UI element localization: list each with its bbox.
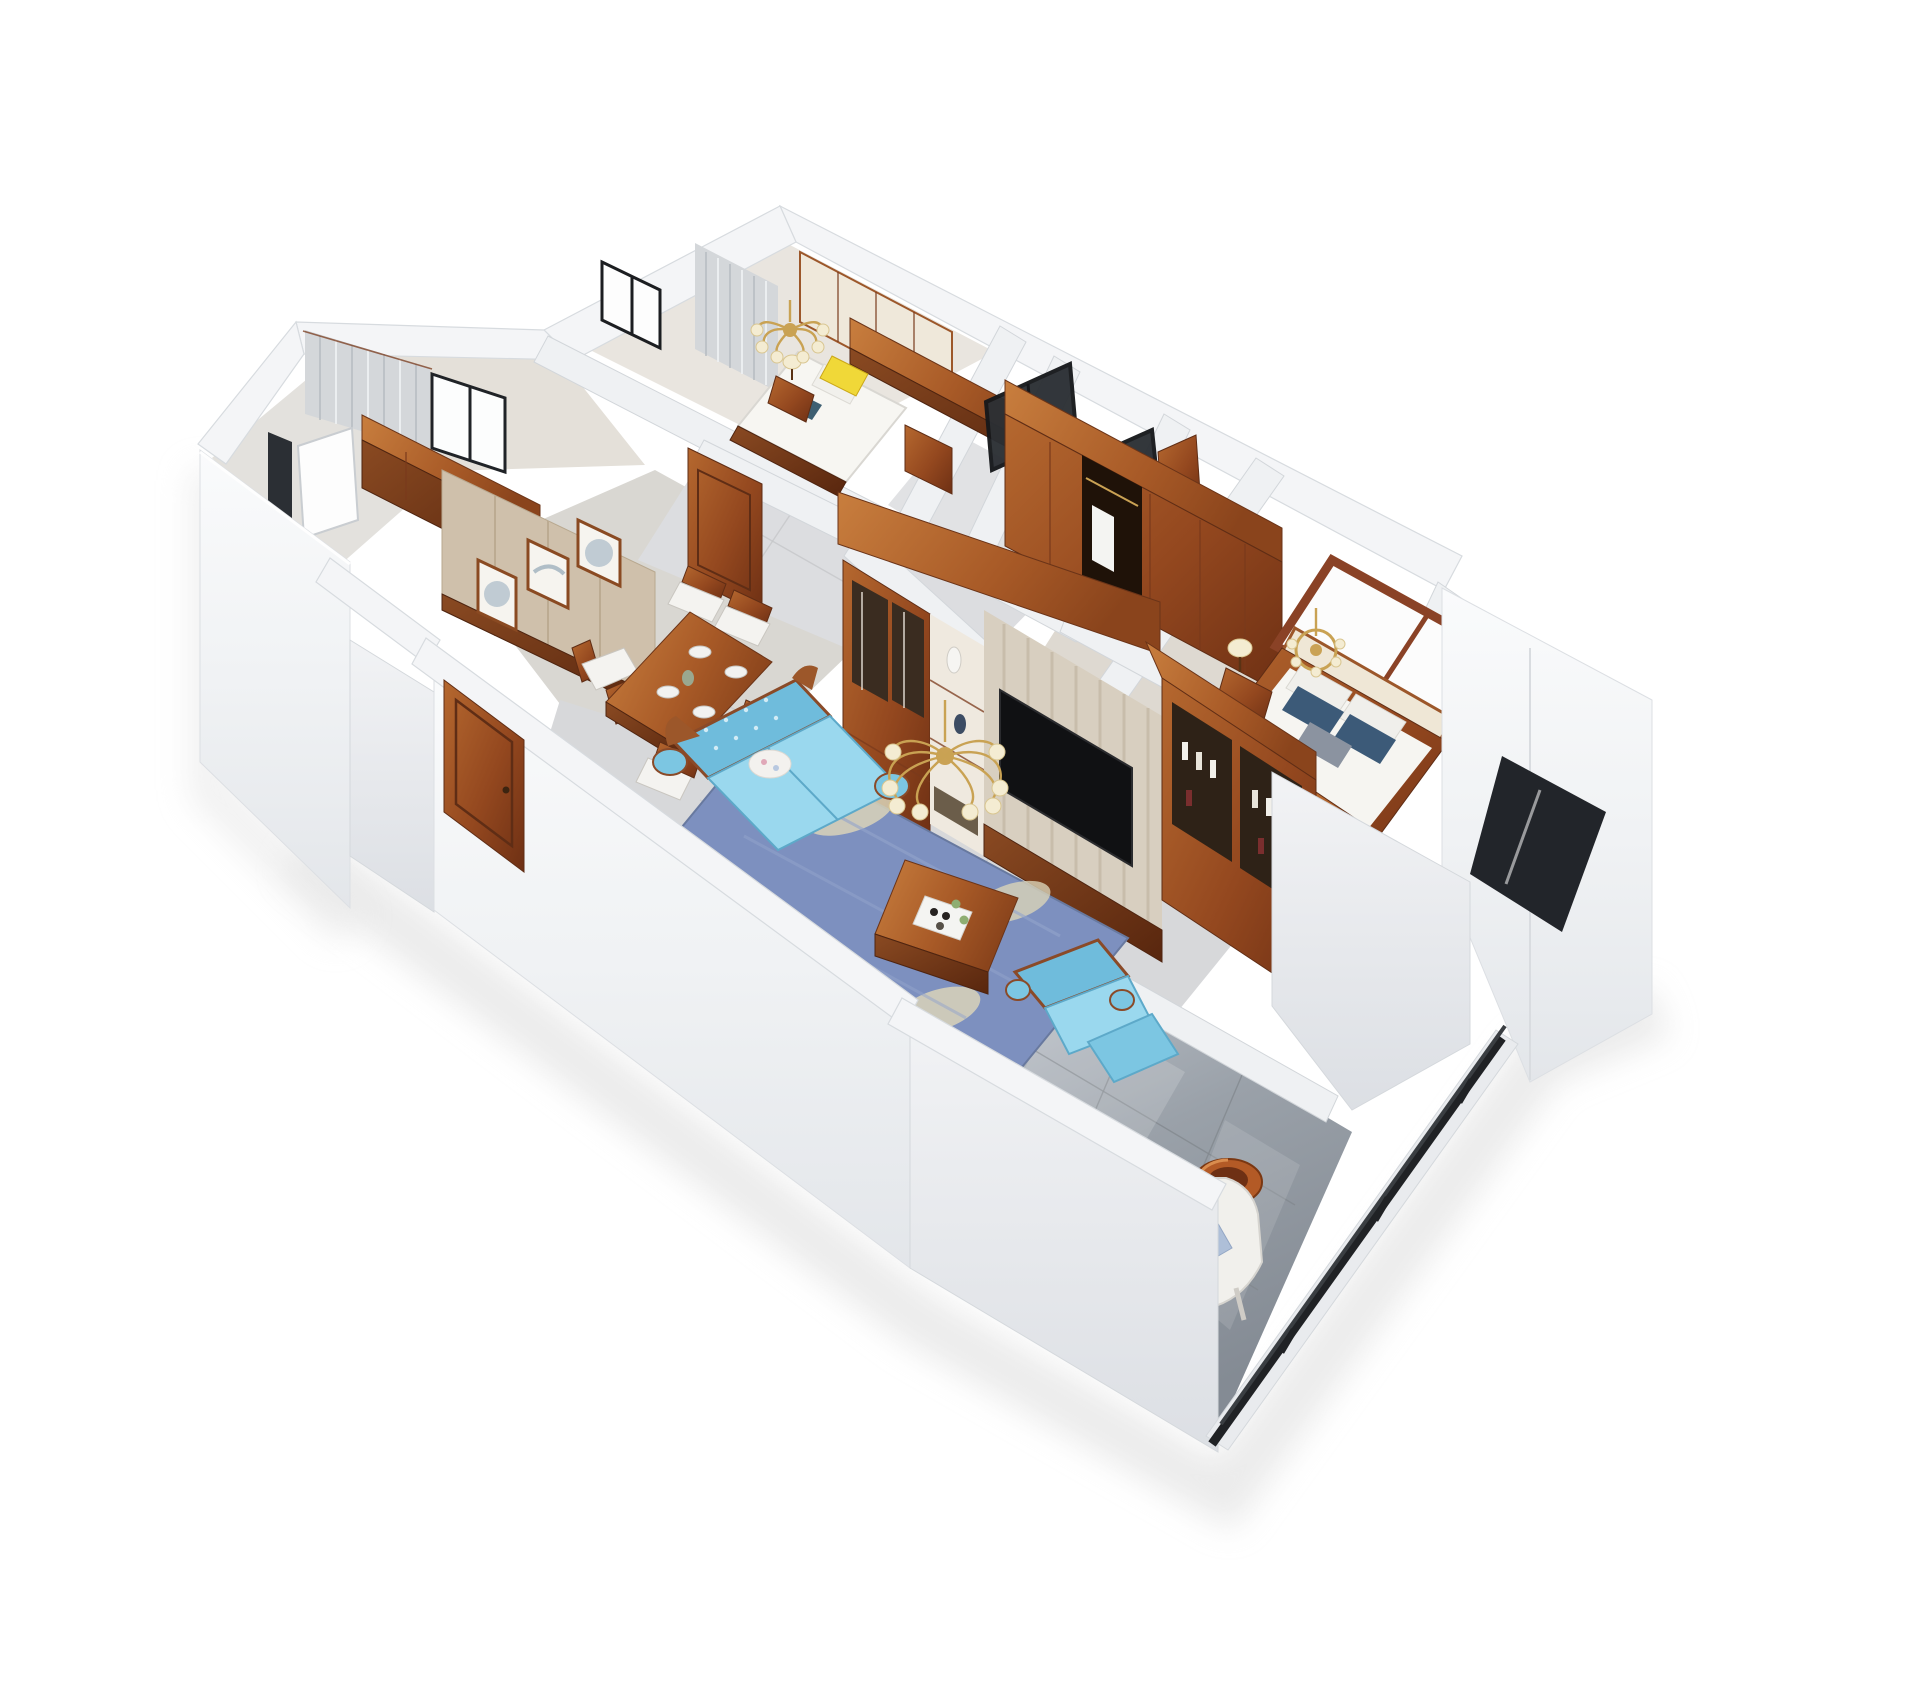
master-lamp-shade <box>1228 639 1252 657</box>
dining-vase <box>682 670 694 686</box>
floorplan-svg <box>0 0 1920 1688</box>
bay-volume-1 <box>1442 588 1652 1082</box>
entry-door-handle <box>503 787 510 794</box>
niche-vase-1 <box>947 647 961 673</box>
sofa-arm-left <box>653 749 687 775</box>
display-cabinet-glass-2 <box>892 602 924 718</box>
floorplan-render-canvas <box>0 0 1920 1688</box>
niche-vase-2 <box>954 714 966 734</box>
sofa-pillow-floral <box>749 750 791 778</box>
display-cabinet-glass <box>852 580 888 702</box>
utility-window <box>298 428 358 538</box>
